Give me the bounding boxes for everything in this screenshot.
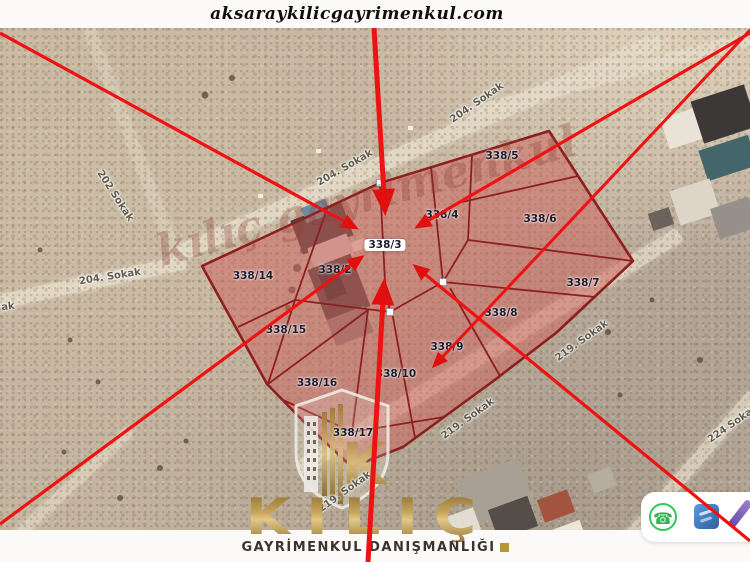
parcel-label: 338/9 — [430, 341, 463, 353]
street-label: ak — [1, 301, 16, 314]
satellite-map: kılıç gayrimenkul — [0, 0, 750, 562]
website-url: aksaraykilicgayrimenkul.com — [210, 4, 504, 24]
parcel-label: 338/4 — [425, 209, 458, 221]
parcel-label: 338/5 — [485, 150, 518, 162]
parcel-label: 338/6 — [523, 213, 556, 225]
parcel-label-highlighted: 338/3 — [364, 239, 405, 251]
header-bar: aksaraykilicgayrimenkul.com — [0, 0, 750, 28]
parcel-label: 338/16 — [297, 377, 337, 389]
promo-image: kılıç gayrimenkul — [0, 0, 750, 562]
parcel-label: 338/14 — [233, 270, 273, 282]
brand-tagline-text: GAYRİMENKUL DANIŞMANLIĞI — [241, 540, 495, 555]
parcel-label: 338/15 — [266, 324, 306, 336]
parcel-label: 338/7 — [566, 277, 599, 289]
parcel-label: 338/17 — [333, 427, 373, 439]
brand-tagline: GAYRİMENKUL DANIŞMANLIĞI — [0, 540, 750, 555]
parcel-label: 338/10 — [376, 368, 416, 380]
brand-logo-text: KILIÇ — [0, 492, 750, 542]
brand-gold-square — [500, 543, 509, 552]
parcel-label: 338/8 — [484, 307, 517, 319]
parcel-label: 338/2 — [318, 264, 351, 276]
